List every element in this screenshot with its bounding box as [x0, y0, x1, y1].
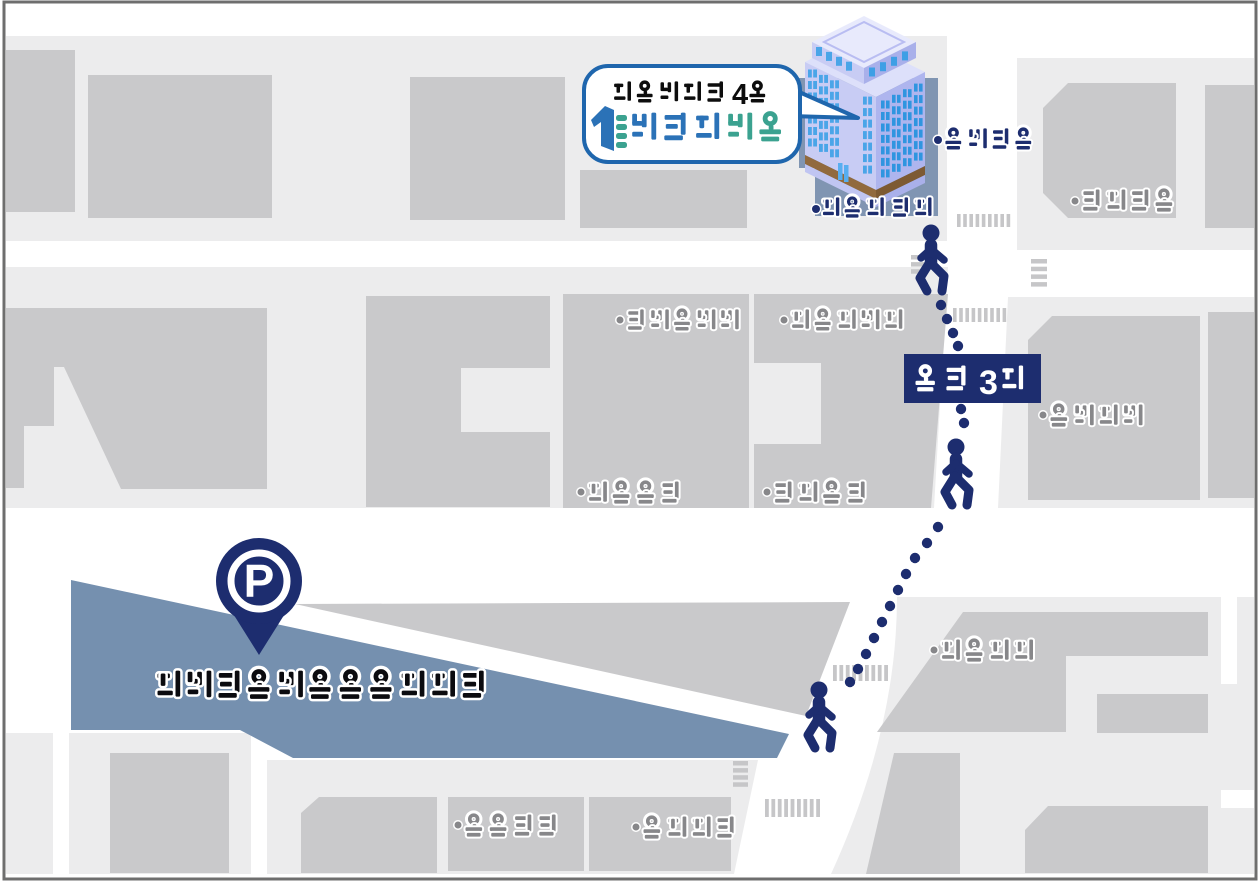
- svg-text:4: 4: [732, 79, 748, 111]
- svg-text:3: 3: [979, 364, 998, 402]
- svg-text:P: P: [244, 555, 275, 607]
